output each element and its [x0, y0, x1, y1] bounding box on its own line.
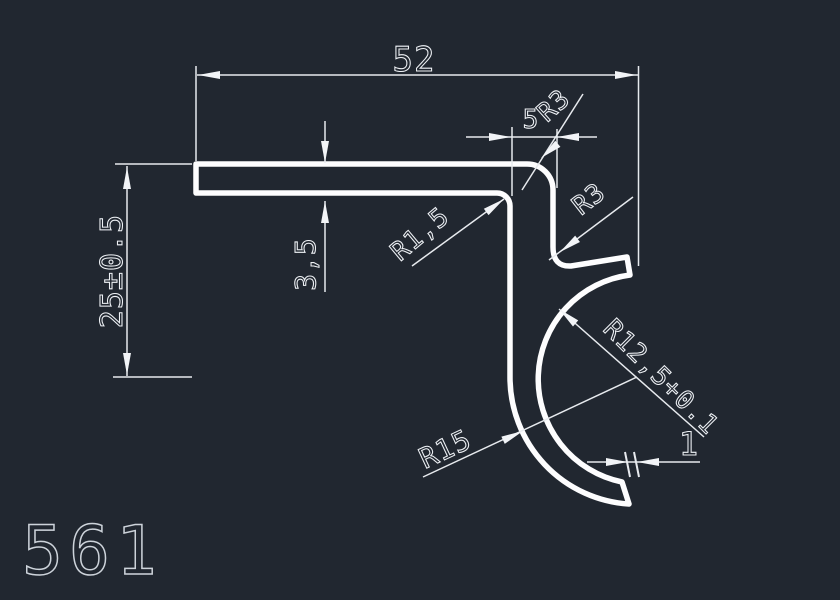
- dim-hook-offset: 5: [466, 105, 597, 196]
- dim-overall-height: 25±0.5: [95, 164, 192, 377]
- arrowhead: [198, 71, 220, 79]
- dim-tip-thickness: 1: [587, 425, 700, 477]
- arrowhead: [123, 353, 131, 375]
- dim-text-height: 25±0.5: [95, 214, 130, 328]
- dim-text-width: 52: [393, 40, 436, 80]
- cad-drawing-canvas[interactable]: 52 25±0.5 3,5 5 R3 R3: [0, 0, 840, 600]
- dim-text-r3-s: R3: [567, 177, 612, 221]
- drawing-viewport: 52 25±0.5 3,5 5 R3 R3: [0, 0, 840, 600]
- arrowhead: [321, 201, 329, 223]
- arrowhead: [558, 236, 580, 256]
- arrowhead: [321, 141, 329, 163]
- arrowhead: [489, 133, 511, 141]
- dim-radius-inner-fillet: R1,5: [385, 196, 506, 268]
- part-number-label: 561: [22, 512, 163, 591]
- dim-text-tip: 1: [679, 425, 699, 463]
- dim-radius-bowl-inner: R12,5+0.1: [556, 306, 724, 441]
- arrowhead: [557, 133, 579, 141]
- dim-text-r15: R15: [414, 423, 477, 476]
- profile-outline: [196, 164, 630, 504]
- dim-text-r12-5: R12,5+0.1: [597, 314, 724, 441]
- dim-radius-s-curve: R3: [549, 177, 633, 260]
- arrowhead: [484, 196, 507, 215]
- arrowhead: [123, 167, 131, 189]
- dim-text-thickness: 3,5: [289, 237, 322, 291]
- arrowhead: [606, 458, 628, 466]
- extension-tick: [634, 452, 639, 477]
- extension-tick: [625, 452, 630, 477]
- dim-bar-thickness: 3,5: [289, 121, 329, 292]
- dim-text-r1-5: R1,5: [385, 202, 455, 268]
- arrowhead: [615, 71, 637, 79]
- arrowhead: [637, 458, 659, 466]
